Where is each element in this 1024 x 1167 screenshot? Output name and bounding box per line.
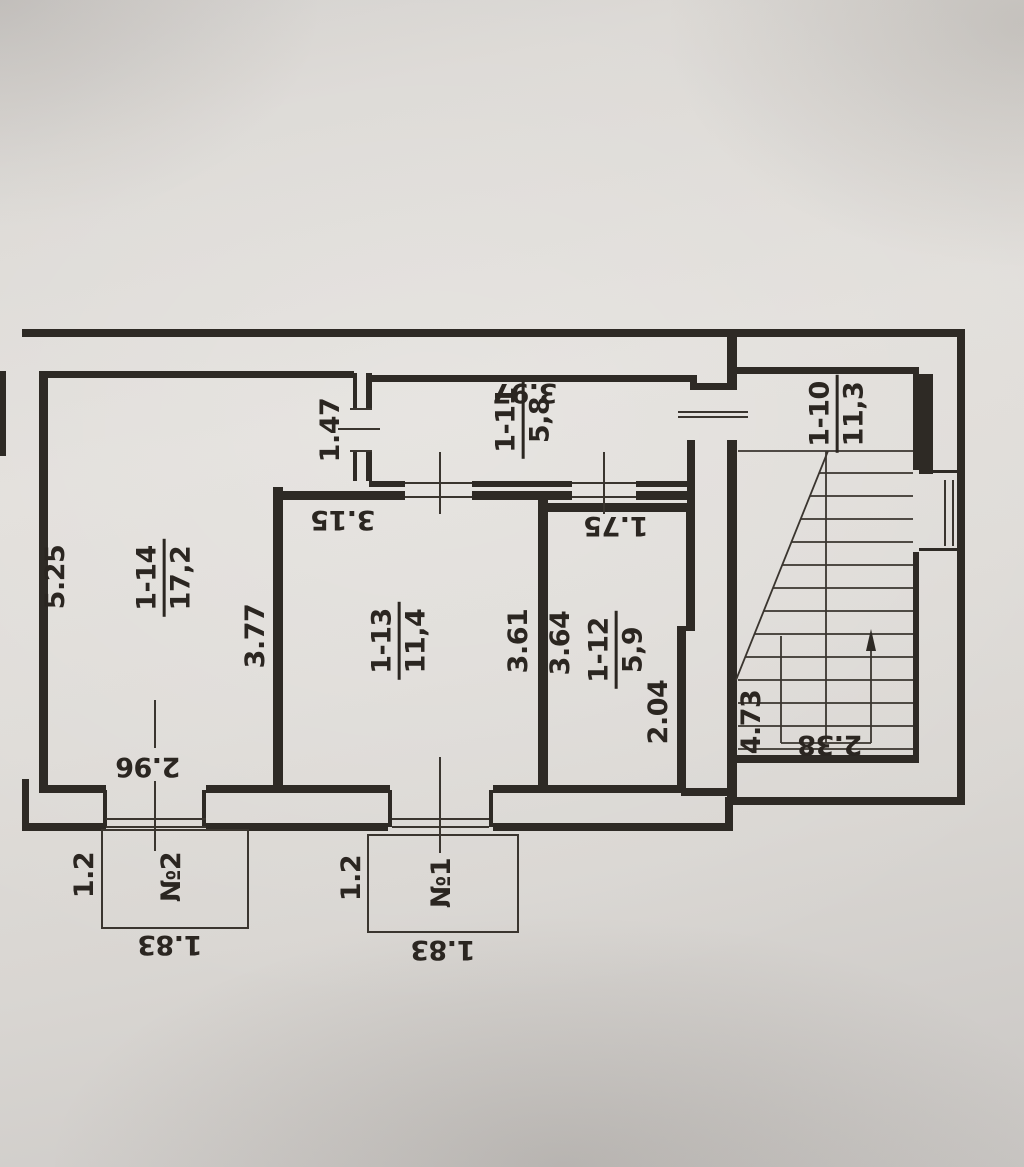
room-number: 1-12 <box>586 611 618 689</box>
dim-3-61: 3.61 <box>505 609 533 674</box>
dim-4-73: 4.73 <box>738 690 766 755</box>
labels-layer: 1-14 17,2 1-13 11,4 1-12 5,9 1-11 5,8 1-… <box>0 0 1024 1167</box>
room-area: 17,2 <box>166 546 196 611</box>
room-area: 11,4 <box>401 609 431 674</box>
dim-1-2-balcony-1: 1.2 <box>338 855 366 901</box>
room-number: 1-10 <box>807 375 839 453</box>
floor-plan-photo: 1-14 17,2 1-13 11,4 1-12 5,9 1-11 5,8 1-… <box>0 0 1024 1167</box>
dim-1-2-balcony-2: 1.2 <box>71 852 99 898</box>
dim-1-83-balcony-1: 1.83 <box>411 935 476 963</box>
room-label-1-12: 1-12 5,9 <box>586 611 649 689</box>
dim-3-77: 3.77 <box>242 604 270 669</box>
dim-1-47: 1.47 <box>317 398 345 463</box>
dim-3-15: 3.15 <box>311 505 376 533</box>
dim-1-83-balcony-2: 1.83 <box>138 930 203 958</box>
room-number: 1-14 <box>134 539 166 617</box>
balcony-1-label: №1 <box>428 858 456 908</box>
dim-2-38: 2.38 <box>798 730 863 758</box>
room-area: 11,3 <box>839 382 869 447</box>
dim-2-96: 2.96 <box>116 752 181 780</box>
room-label-1-10: 1-10 11,3 <box>807 375 870 453</box>
dim-5-25: 5.25 <box>42 545 70 610</box>
dim-1-75: 1.75 <box>584 511 649 539</box>
dim-3-97: 3.97 <box>493 378 558 406</box>
dim-2-04: 2.04 <box>645 680 673 745</box>
room-number: 1-13 <box>369 602 401 680</box>
room-area: 5,9 <box>618 627 648 673</box>
dim-3-64: 3.64 <box>547 611 575 676</box>
balcony-2-label: №2 <box>158 852 186 902</box>
room-label-1-14: 1-14 17,2 <box>134 539 197 617</box>
room-label-1-13: 1-13 11,4 <box>369 602 432 680</box>
